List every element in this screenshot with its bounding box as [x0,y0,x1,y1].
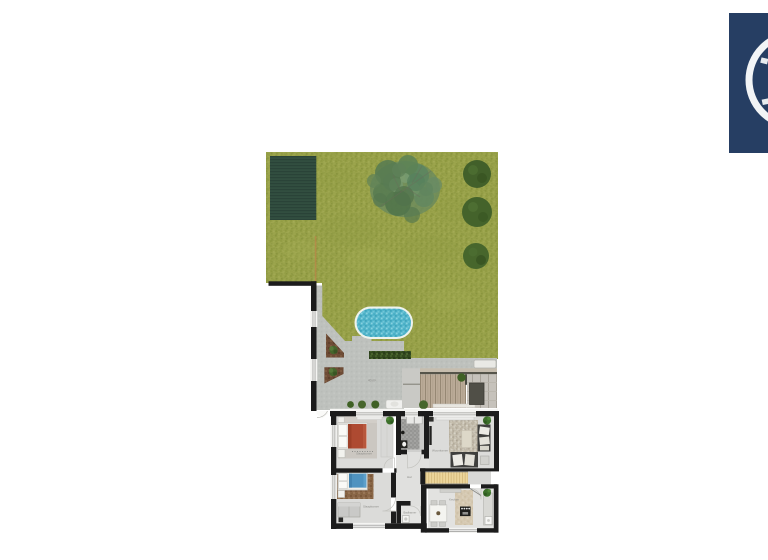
svg-text:Hal: Hal [407,475,412,479]
svg-text:Woonkamer: Woonkamer [432,449,448,453]
svg-text:Slaapkamer: Slaapkamer [356,452,372,456]
svg-text:40 m²: 40 m² [368,379,376,383]
svg-text:Slaapkamer: Slaapkamer [363,505,379,509]
svg-text:Badkamer: Badkamer [404,511,417,515]
svg-text:Keuken: Keuken [449,498,460,502]
